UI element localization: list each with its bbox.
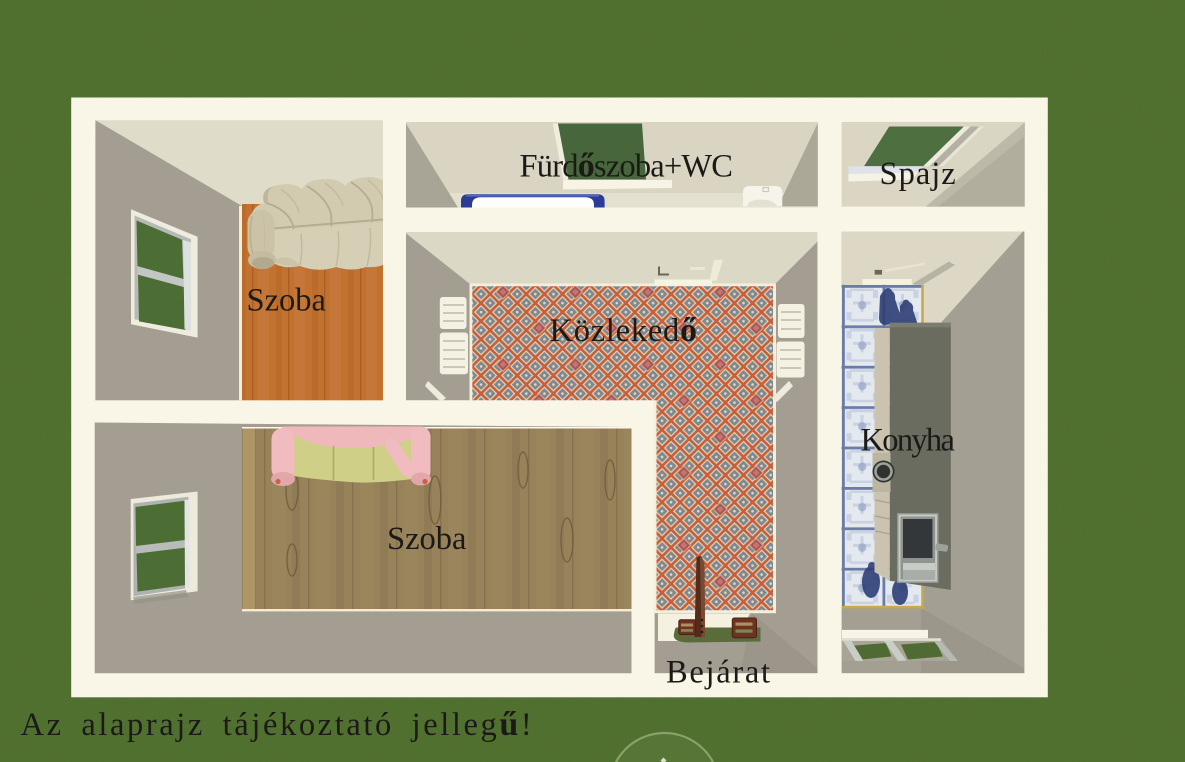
svg-text:Konyha: Konyha <box>861 422 955 458</box>
svg-text:Szoba: Szoba <box>247 283 326 319</box>
svg-text:Szoba: Szoba <box>387 521 466 557</box>
svg-text:Közlekedő: Közlekedő <box>550 312 698 349</box>
svg-text:Fürdőszoba+WC: Fürdőszoba+WC <box>520 148 733 185</box>
svg-text:Az alaprajz tájékoztató jelleg: Az alaprajz tájékoztató jellegű! <box>21 706 535 743</box>
svg-text:Bejárat: Bejárat <box>666 655 772 691</box>
svg-text:Spajz: Spajz <box>880 156 957 192</box>
